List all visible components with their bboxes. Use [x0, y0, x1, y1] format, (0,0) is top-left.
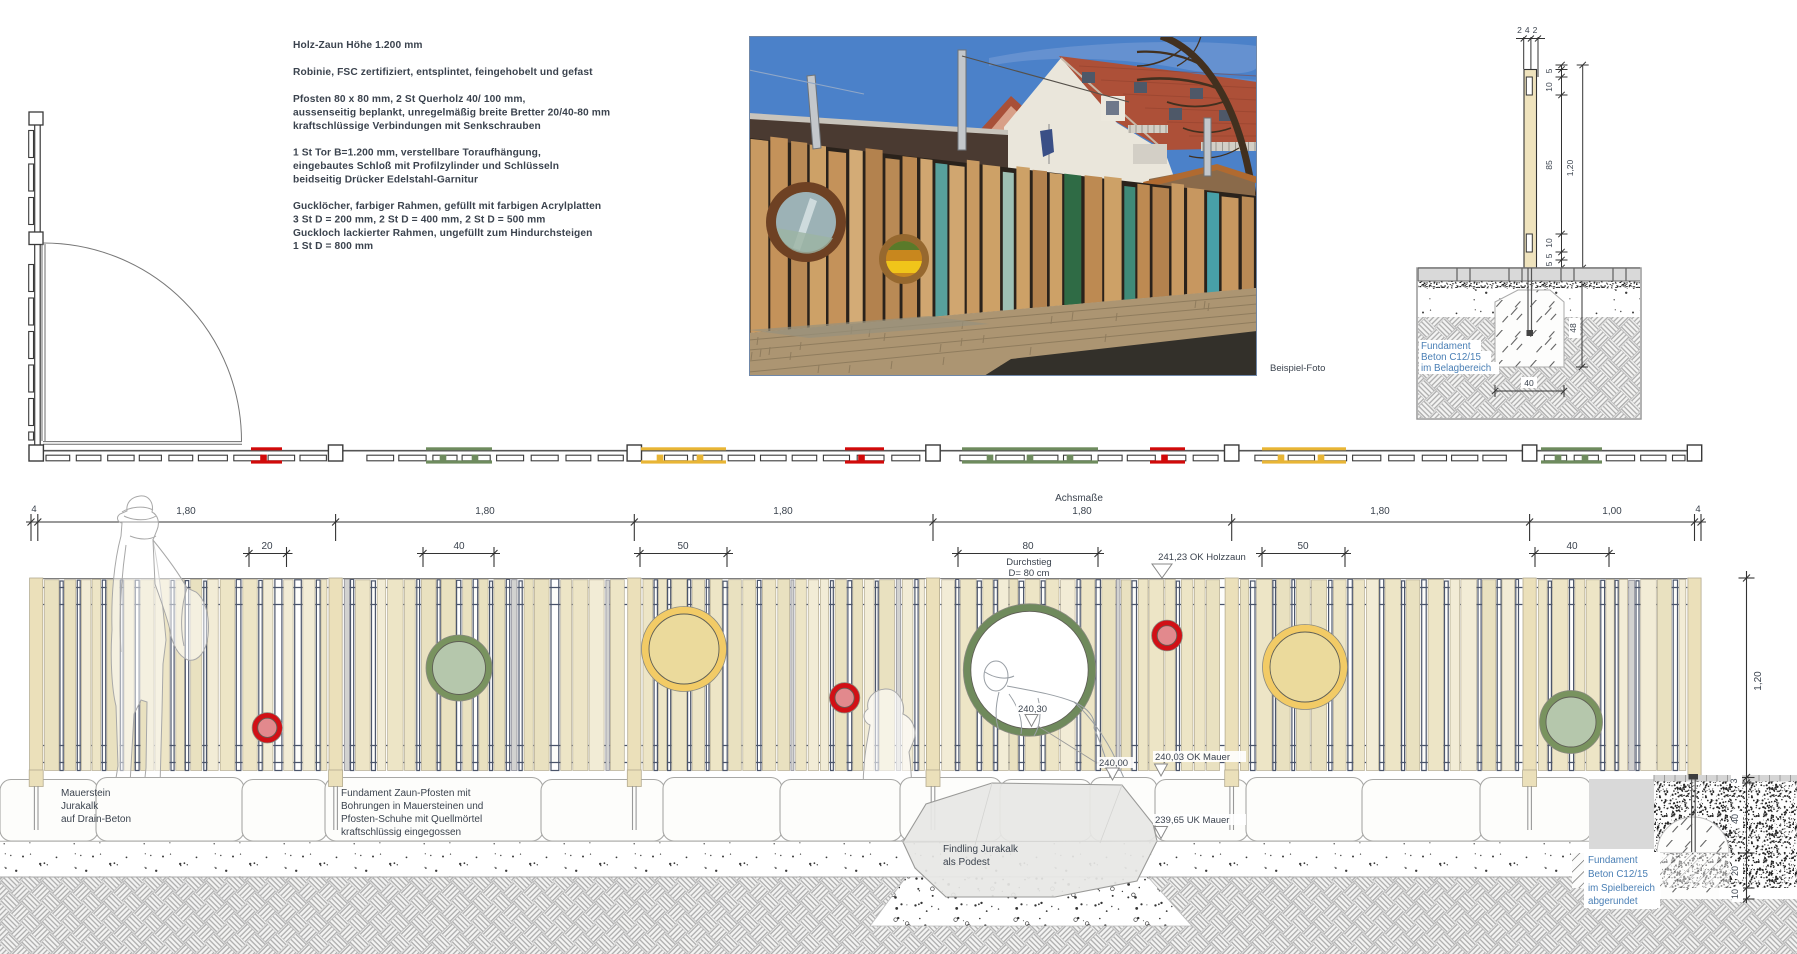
svg-text:Pfosten 80 x 80 mm, 2 St Querh: Pfosten 80 x 80 mm, 2 St Querholz 40/ 10… [293, 94, 525, 105]
svg-text:3: 3 [1729, 778, 1739, 783]
svg-text:auf Drain-Beton: auf Drain-Beton [61, 814, 131, 825]
svg-text:1 St Tor B=1.200 mm, verstellb: 1 St Tor B=1.200 mm, verstellbare Torauf… [293, 148, 541, 159]
svg-text:Guckloch lackierter Rahmen, un: Guckloch lackierter Rahmen, ungefüllt zu… [293, 228, 593, 239]
svg-text:Durchstieg: Durchstieg [1006, 557, 1051, 568]
svg-text:Fundament: Fundament [1421, 341, 1471, 352]
svg-text:85: 85 [1544, 160, 1554, 170]
svg-text:10: 10 [1544, 82, 1554, 92]
svg-text:beidseitig Drücker Edelstahl-G: beidseitig Drücker Edelstahl-Garnitur [293, 175, 478, 186]
svg-text:10: 10 [1544, 238, 1554, 248]
svg-text:1,80: 1,80 [1072, 506, 1092, 517]
svg-text:im Belagbereich: im Belagbereich [1421, 363, 1491, 374]
svg-text:als Podest: als Podest [943, 857, 990, 868]
svg-text:5: 5 [1544, 261, 1554, 266]
svg-text:Mauerstein: Mauerstein [61, 788, 110, 799]
svg-text:Jurakalk: Jurakalk [61, 801, 99, 812]
svg-text:1,80: 1,80 [773, 506, 793, 517]
svg-text:80: 80 [1022, 541, 1034, 552]
svg-text:5: 5 [1544, 68, 1554, 73]
svg-text:Fundament: Fundament [1588, 855, 1638, 866]
svg-text:239,65 UK Mauer: 239,65 UK Mauer [1155, 815, 1229, 826]
svg-text:1,80: 1,80 [176, 506, 196, 517]
svg-text:48: 48 [1568, 323, 1578, 333]
svg-text:Fundament Zaun-Pfosten mit: Fundament Zaun-Pfosten mit [341, 788, 471, 799]
svg-text:1,00: 1,00 [1602, 506, 1622, 517]
svg-text:kraftschlüssig eingegossen: kraftschlüssig eingegossen [341, 827, 461, 838]
svg-text:3 St D = 200 mm, 2 St D = 400: 3 St D = 200 mm, 2 St D = 400 mm, 2 St D… [293, 215, 545, 226]
svg-text:20: 20 [1730, 866, 1740, 876]
svg-text:4: 4 [1695, 504, 1700, 515]
svg-text:Beispiel-Foto: Beispiel-Foto [1270, 363, 1325, 374]
svg-text:5: 5 [1544, 253, 1554, 258]
svg-text:50: 50 [677, 541, 689, 552]
svg-text:abgerundet: abgerundet [1588, 896, 1638, 907]
svg-text:Beton C12/15: Beton C12/15 [1421, 352, 1481, 363]
svg-text:Achsmaße: Achsmaße [1055, 493, 1103, 504]
svg-text:D= 80 cm: D= 80 cm [1009, 568, 1050, 579]
svg-text:1,80: 1,80 [475, 506, 495, 517]
svg-text:kraftschlüssige Verbindungen m: kraftschlüssige Verbindungen mit Senksch… [293, 121, 541, 132]
svg-text:241,23 OK Holzzaun: 241,23 OK Holzzaun [1158, 552, 1246, 563]
svg-text:4: 4 [1525, 25, 1530, 35]
svg-text:Pfosten-Schuhe mit Quellmörtel: Pfosten-Schuhe mit Quellmörtel [341, 814, 482, 825]
svg-text:2: 2 [1517, 25, 1522, 35]
svg-text:Holz-Zaun Höhe 1.200 mm: Holz-Zaun Höhe 1.200 mm [293, 40, 423, 51]
svg-text:1,20: 1,20 [1565, 159, 1575, 176]
svg-text:40: 40 [1730, 814, 1740, 824]
svg-text:240,00: 240,00 [1099, 758, 1128, 769]
svg-text:1,80: 1,80 [1370, 506, 1390, 517]
svg-text:Bohrungen in Mauersteinen und: Bohrungen in Mauersteinen und [341, 801, 483, 812]
svg-text:240,30: 240,30 [1018, 704, 1047, 715]
svg-text:10: 10 [1730, 889, 1740, 899]
svg-text:Robinie, FSC zertifiziert, ent: Robinie, FSC zertifiziert, entsplintet, … [293, 67, 593, 78]
svg-text:20: 20 [261, 541, 273, 552]
svg-text:240,03 OK Mauer: 240,03 OK Mauer [1155, 752, 1230, 763]
svg-text:4: 4 [31, 504, 36, 515]
svg-text:40: 40 [1524, 378, 1534, 388]
svg-text:40: 40 [453, 541, 465, 552]
svg-text:aussenseitig beplankt, unregel: aussenseitig beplankt, unregelmäßig brei… [293, 108, 610, 119]
svg-text:2: 2 [1533, 25, 1538, 35]
svg-text:im Spielbereich: im Spielbereich [1588, 883, 1655, 894]
svg-text:eingebautes Schloß mit Profilz: eingebautes Schloß mit Profilzylinder un… [293, 161, 559, 172]
svg-text:Gucklöcher, farbiger Rahmen, g: Gucklöcher, farbiger Rahmen, gefüllt mit… [293, 201, 601, 212]
svg-text:50: 50 [1297, 541, 1309, 552]
svg-text:40: 40 [1566, 541, 1578, 552]
svg-text:Beton C12/15: Beton C12/15 [1588, 869, 1648, 880]
svg-text:1 St D = 800 mm: 1 St D = 800 mm [293, 241, 373, 252]
svg-text:Findling Jurakalk: Findling Jurakalk [943, 844, 1019, 855]
svg-text:1,20: 1,20 [1753, 671, 1764, 691]
